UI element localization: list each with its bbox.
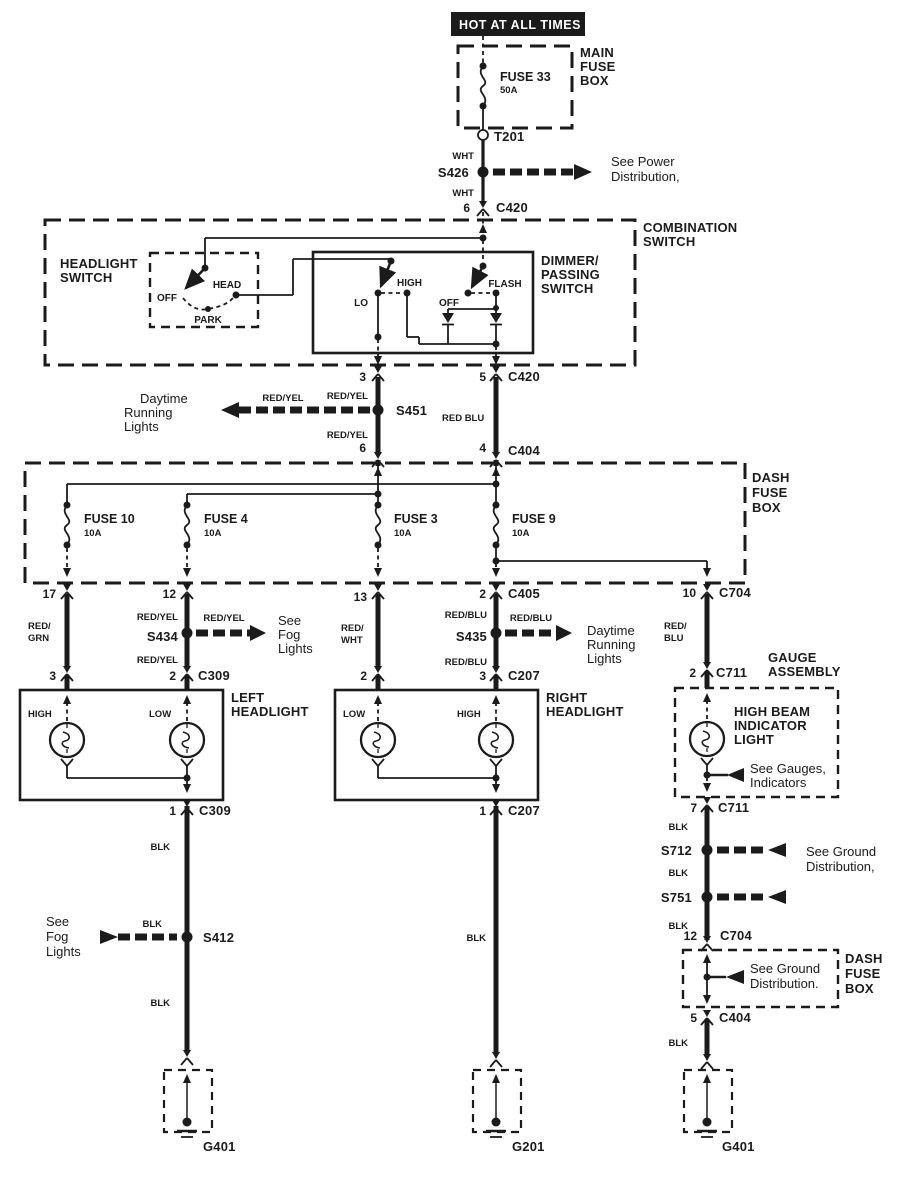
contact-park-dot — [205, 306, 211, 312]
wire-color-redblu-arrow: RED/BLU — [510, 613, 552, 624]
position-off-2: OFF — [439, 298, 459, 309]
s412-label: S412 — [203, 930, 234, 945]
diode-icon — [442, 313, 454, 325]
wire-color-redblu: RED/BLU — [445, 657, 487, 668]
lamp-low-label: LOW — [343, 709, 365, 720]
exit-arrow-icon — [703, 995, 711, 1004]
fuse-10-rating: 10A — [84, 528, 102, 539]
wire-color-red: RED/ — [664, 621, 687, 632]
ref-arrowhead-drl2-icon — [556, 625, 572, 641]
right-ground-column: BLK S712 See Ground Distribution, BLK S7… — [661, 806, 883, 1154]
power-banner: HOT AT ALL TIMES — [451, 12, 585, 36]
s426-label: S426 — [438, 165, 469, 180]
c704-label: C704 — [719, 585, 751, 600]
s435-label: S435 — [456, 629, 487, 644]
dash-fuse-box-title-1: DASH — [752, 470, 790, 485]
high-beam-lamp-1: HIGH BEAM — [734, 704, 810, 719]
wiring-diagram-page: HOT AT ALL TIMES MAIN FUSE BOX FUSE 33 5… — [0, 0, 910, 1191]
pin-3-rh: 3 — [479, 669, 486, 683]
headlight-switch: HEADLIGHT SWITCH OFF PARK HEAD — [60, 253, 258, 327]
pin-3-lh: 3 — [49, 669, 56, 683]
wire-color-red: RED/ — [341, 623, 364, 634]
position-head: HEAD — [213, 280, 241, 291]
g401-left-label: G401 — [203, 1139, 236, 1154]
see-ground-2a: See Ground — [750, 961, 820, 976]
combination-switch-title-1: COMBINATION — [643, 220, 737, 235]
pin-2-gauge: 2 — [689, 666, 696, 680]
wire-color-blk: BLK — [150, 998, 170, 1009]
fuse-33-icon — [480, 63, 487, 110]
left-headlight-box: LEFT HEADLIGHT HIGH LOW 1 C309 — [20, 690, 309, 818]
dash-fuse-box2-title-2: FUSE — [845, 966, 881, 981]
pin-2-rh: 2 — [360, 669, 367, 683]
see-fog2-1: See — [46, 914, 69, 929]
ref-arrowhead-drl-icon — [221, 402, 239, 418]
exit-arrow-icon — [703, 783, 711, 792]
exit-arrow-icon — [183, 784, 191, 793]
wire-color-grn: GRN — [28, 633, 49, 644]
feed-wire-top: T201 WHT S426 See Power Distribution, WH… — [438, 106, 680, 236]
splice-dot-s451 — [373, 405, 384, 416]
junction-dot — [493, 481, 500, 488]
bulb-high-icon — [479, 723, 513, 757]
c711-label: C711 — [716, 665, 747, 680]
left-headlight-title-1: LEFT — [231, 690, 264, 705]
pin-2-lh: 2 — [169, 669, 176, 683]
see-power-1: See Power — [611, 154, 675, 169]
lamp-low-label: LOW — [149, 709, 171, 720]
daytime-note-2: Running — [124, 405, 172, 420]
pin-12-bottom: 12 — [684, 929, 698, 943]
connector-ground-icon — [701, 1054, 713, 1069]
wire-color-blk: BLK — [150, 842, 170, 853]
connector-c704-bottom-icon — [701, 936, 713, 951]
wire-color-blk: BLK — [668, 1038, 688, 1049]
bulb-indicator-icon — [690, 722, 724, 756]
position-flash: FLASH — [488, 279, 521, 290]
exit-arrow-icon — [183, 568, 191, 577]
connector-ground-icon — [490, 1052, 502, 1067]
bulb-low-icon — [170, 723, 204, 757]
gauge-assembly-title-1: GAUGE — [768, 650, 817, 665]
fuse-3-icon — [375, 502, 382, 549]
fuse-9-label: FUSE 9 — [512, 512, 556, 526]
pin-6-top: 6 — [463, 201, 470, 215]
pin-17: 17 — [43, 587, 57, 601]
wire-color-wht-1: WHT — [452, 151, 474, 162]
daytime-note-1: Daytime — [140, 391, 188, 406]
see-ground-2b: Distribution. — [750, 976, 819, 991]
ref-arrowhead-fog-icon — [250, 625, 266, 641]
lamp-high-label: HIGH — [28, 709, 52, 720]
fuse-33-label: FUSE 33 — [500, 70, 551, 84]
right-headlight-box: RIGHT HEADLIGHT LOW HIGH 1 C207 — [335, 690, 624, 818]
dimmer-title-3: SWITCH — [541, 281, 593, 296]
diode-icon — [490, 313, 502, 325]
bulb-low-icon — [361, 723, 395, 757]
splice-dot-s434 — [182, 628, 193, 639]
dimmer-title-2: PASSING — [541, 267, 600, 282]
c404-bottom-label: C404 — [719, 1010, 751, 1025]
ref-arrowhead-ground2-icon — [768, 890, 786, 904]
dash-fuse-box-title-2: FUSE — [752, 485, 788, 500]
main-fuse-box: MAIN FUSE BOX FUSE 33 50A — [458, 36, 616, 128]
fuse-9-rating: 10A — [512, 528, 530, 539]
passing-arm — [472, 266, 483, 287]
main-fuse-box-title-2: FUSE — [580, 59, 616, 74]
g401-right-label: G401 — [722, 1139, 755, 1154]
splice-dot-s435 — [491, 628, 502, 639]
wiring-diagram: HOT AT ALL TIMES MAIN FUSE BOX FUSE 33 5… — [0, 0, 910, 1191]
entry-arrow-icon — [479, 224, 487, 233]
ref-arrowhead-ground1-icon — [768, 843, 786, 857]
wire-color-blk: BLK — [142, 919, 162, 930]
daytime2-note-2: Running — [587, 637, 635, 652]
wire-color-blu: BLU — [664, 633, 684, 644]
s751-label: S751 — [661, 890, 692, 905]
ref-arrowhead-power-icon — [574, 164, 592, 180]
row1-connectors: 17 12 13 2 C405 10 C704 RED/ GRN RED/YEL… — [28, 584, 751, 668]
fuse-10-icon — [64, 502, 71, 549]
see-ground-1b: Distribution, — [806, 859, 875, 874]
c711-bottom-label: C711 — [718, 800, 749, 815]
daytime-note-3: Lights — [124, 419, 159, 434]
t201-label: T201 — [494, 129, 524, 144]
headlight-switch-title-1: HEADLIGHT — [60, 256, 138, 271]
fuse-9-icon — [493, 502, 500, 549]
pin-12: 12 — [163, 587, 177, 601]
s451-label: S451 — [396, 403, 427, 418]
c420-top-label: C420 — [496, 200, 528, 215]
dash-fuse-box: DASH FUSE BOX FUSE 10 10A FUSE 4 10A FUS… — [25, 463, 790, 583]
left-ground-column: BLK BLK S412 See Fog Lights BLK G401 — [46, 806, 236, 1154]
switch-arm — [186, 268, 205, 288]
exit-arrow-icon — [63, 568, 71, 577]
fuse-33-rating: 50A — [500, 85, 518, 96]
g201-label: G201 — [512, 1139, 545, 1154]
wire-color-red: RED/ — [28, 621, 51, 632]
wire-color-redyel-arrow: RED/YEL — [262, 393, 303, 404]
daytime2-note-1: Daytime — [587, 623, 635, 638]
wire-color-redyel-arrow: RED/YEL — [203, 613, 244, 624]
lamp-high-label: HIGH — [457, 709, 481, 720]
contact-off-dot — [465, 290, 472, 297]
wire-color-redblu: RED/BLU — [445, 610, 487, 621]
s451-section: 3 5 C420 RED/YEL S451 RED/YEL RED/YEL Da… — [124, 366, 540, 467]
pin-10: 10 — [683, 586, 697, 600]
right-headlight-title-2: HEADLIGHT — [546, 704, 624, 719]
bulb-high-icon — [50, 723, 84, 757]
left-headlight-title-2: HEADLIGHT — [231, 704, 309, 719]
wire-color-redblu: RED BLU — [442, 413, 484, 424]
see-gauges-1: See Gauges, — [750, 761, 826, 776]
entry-arrow-icon — [492, 1074, 500, 1083]
junction-dot — [375, 491, 382, 498]
dimmer-arm — [381, 261, 391, 286]
ref-arrowhead-gauges-icon — [727, 768, 744, 782]
ref-arrowhead-fog2-icon — [100, 930, 118, 944]
position-off: OFF — [157, 293, 177, 304]
c309-label: C309 — [198, 668, 230, 683]
see-fog-1: See — [278, 613, 301, 628]
main-fuse-box-title-3: BOX — [580, 73, 609, 88]
entry-arrow-icon — [183, 1074, 191, 1083]
position-park: PARK — [194, 315, 222, 326]
c309-bottom-label: C309 — [199, 803, 231, 818]
splice-dot-s751 — [702, 892, 713, 903]
middle-ground-column: BLK G201 — [466, 806, 544, 1154]
wire-color-wht: WHT — [341, 635, 363, 646]
ground-icon — [697, 1118, 717, 1138]
dash-fuse-box2-title-3: BOX — [845, 981, 874, 996]
wire-color-redyel: RED/YEL — [137, 612, 178, 623]
pin-4: 4 — [479, 441, 486, 455]
c704-bottom-label: C704 — [720, 928, 752, 943]
fuse-10-label: FUSE 10 — [84, 512, 135, 526]
c405-label: C405 — [508, 586, 540, 601]
wire-color-redyel: RED/YEL — [327, 430, 368, 441]
wire-color-redyel: RED/YEL — [137, 655, 178, 666]
pin-1-rh: 1 — [479, 804, 486, 818]
pin-1-lh: 1 — [169, 804, 176, 818]
c404-label: C404 — [508, 443, 540, 458]
exit-arrow-icon — [492, 568, 500, 577]
ground-icon — [177, 1118, 197, 1138]
s712-label: S712 — [661, 843, 692, 858]
dash-fuse-box2-title-1: DASH — [845, 951, 883, 966]
wire-color-wht-2: WHT — [452, 188, 474, 199]
see-power-2: Distribution, — [611, 169, 680, 184]
wire-color-redyel: RED/YEL — [327, 391, 368, 402]
daytime2-note-3: Lights — [587, 651, 622, 666]
see-ground-1a: See Ground — [806, 844, 876, 859]
banner-label: HOT AT ALL TIMES — [459, 18, 581, 32]
combination-switch-title-2: SWITCH — [643, 234, 695, 249]
see-fog-2: Fog — [278, 627, 300, 642]
pin-3: 3 — [359, 370, 366, 384]
position-high: HIGH — [397, 278, 422, 289]
fuse-3-rating: 10A — [394, 528, 412, 539]
pin-7: 7 — [690, 801, 697, 815]
pin-6-bottom: 6 — [359, 441, 366, 455]
see-gauges-2: Indicators — [750, 775, 807, 790]
position-lo: LO — [354, 298, 368, 309]
splice-dot-s412 — [182, 932, 193, 943]
t201-ring-icon — [478, 130, 488, 140]
combination-switch-box: COMBINATION SWITCH HEADLIGHT SWITCH OFF … — [45, 220, 737, 365]
pin-2-c405: 2 — [479, 587, 486, 601]
see-fog2-3: Lights — [46, 944, 81, 959]
s434-label: S434 — [147, 629, 179, 644]
pin-5-bottom: 5 — [690, 1011, 697, 1025]
gauge-assembly-title-2: ASSEMBLY — [768, 664, 841, 679]
splice-dot-s712 — [702, 845, 713, 856]
high-beam-lamp-3: LIGHT — [734, 732, 774, 747]
ground-icon — [486, 1118, 506, 1138]
wire-color-blk: BLK — [668, 868, 688, 879]
fuse-3-label: FUSE 3 — [394, 512, 438, 526]
see-fog-3: Lights — [278, 641, 313, 656]
headlight-switch-title-2: SWITCH — [60, 270, 112, 285]
pin-5: 5 — [479, 370, 486, 384]
connector-ground-icon — [181, 1050, 193, 1065]
wire-color-blk: BLK — [466, 933, 486, 944]
exit-arrow-icon — [492, 784, 500, 793]
wire-color-blk: BLK — [668, 822, 688, 833]
fuse-4-rating: 10A — [204, 528, 222, 539]
c420-label: C420 — [508, 369, 540, 384]
see-fog2-2: Fog — [46, 929, 68, 944]
gauge-assembly-box: HIGH BEAM INDICATOR LIGHT See Gauges, In… — [675, 688, 838, 815]
exit-arrow-icon — [374, 568, 382, 577]
exit-arrow-icon — [703, 568, 711, 577]
splice-dot-s426 — [478, 167, 489, 178]
c207-label: C207 — [508, 668, 540, 683]
fuse-4-label: FUSE 4 — [204, 512, 248, 526]
dash-fuse-box-title-3: BOX — [752, 500, 781, 515]
entry-arrow-icon — [703, 1074, 711, 1083]
dimmer-title-1: DIMMER/ — [541, 253, 599, 268]
fuse-4-icon — [184, 502, 191, 549]
pin-13: 13 — [354, 590, 368, 604]
high-beam-lamp-2: INDICATOR — [734, 718, 807, 733]
c207-bottom-label: C207 — [508, 803, 540, 818]
right-headlight-title-1: RIGHT — [546, 690, 587, 705]
main-fuse-box-title-1: MAIN — [580, 45, 614, 60]
ref-arrowhead-ground3-icon — [726, 970, 744, 984]
